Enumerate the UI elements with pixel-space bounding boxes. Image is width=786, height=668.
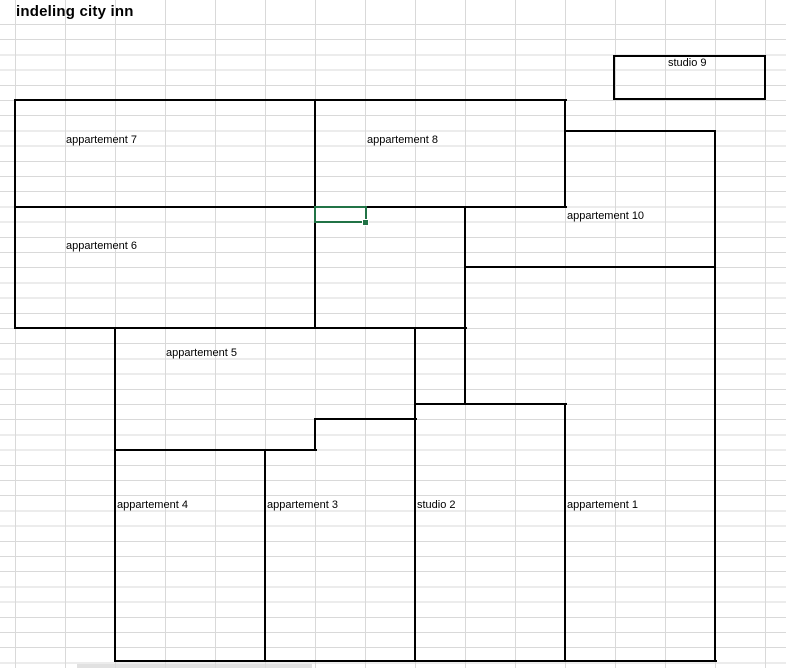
wall-segment (414, 327, 416, 662)
active-cell-selection[interactable] (314, 206, 367, 223)
wall-segment (314, 418, 417, 420)
room-label-appartement-4[interactable]: appartement 4 (117, 498, 188, 513)
room-label-appartement-10[interactable]: appartement 10 (567, 209, 644, 224)
sheet-title[interactable]: indeling city inn (16, 3, 134, 20)
wall-segment (14, 327, 467, 329)
wall-segment (114, 327, 116, 662)
wall-segment (564, 130, 716, 132)
wall-segment (414, 403, 567, 405)
wall-segment (114, 449, 317, 451)
wall-segment (714, 130, 716, 662)
wall-segment (564, 99, 566, 208)
wall-segment (464, 206, 466, 405)
room-label-studio-2[interactable]: studio 2 (417, 498, 456, 513)
wall-segment (564, 403, 566, 662)
room-label-appartement-8[interactable]: appartement 8 (367, 133, 438, 148)
horizontal-gridlines (0, 24, 786, 668)
wall-segment (14, 99, 567, 101)
room-label-appartement-5[interactable]: appartement 5 (166, 346, 237, 361)
room-label-appartement-6[interactable]: appartement 6 (66, 239, 137, 254)
room-label-studio-9[interactable]: studio 9 (668, 56, 707, 71)
wall-segment (14, 206, 567, 208)
wall-segment (14, 99, 16, 329)
room-label-appartement-3[interactable]: appartement 3 (267, 498, 338, 513)
room-label-appartement-7[interactable]: appartement 7 (66, 133, 137, 148)
fill-handle[interactable] (362, 219, 369, 226)
bottom-row-edge (77, 664, 312, 668)
wall-segment (264, 449, 266, 662)
wall-segment (464, 266, 716, 268)
room-label-appartement-1[interactable]: appartement 1 (567, 498, 638, 513)
wall-segment (314, 418, 316, 451)
spreadsheet-canvas[interactable]: indeling city inn studio 9 appartement 7… (0, 0, 786, 668)
